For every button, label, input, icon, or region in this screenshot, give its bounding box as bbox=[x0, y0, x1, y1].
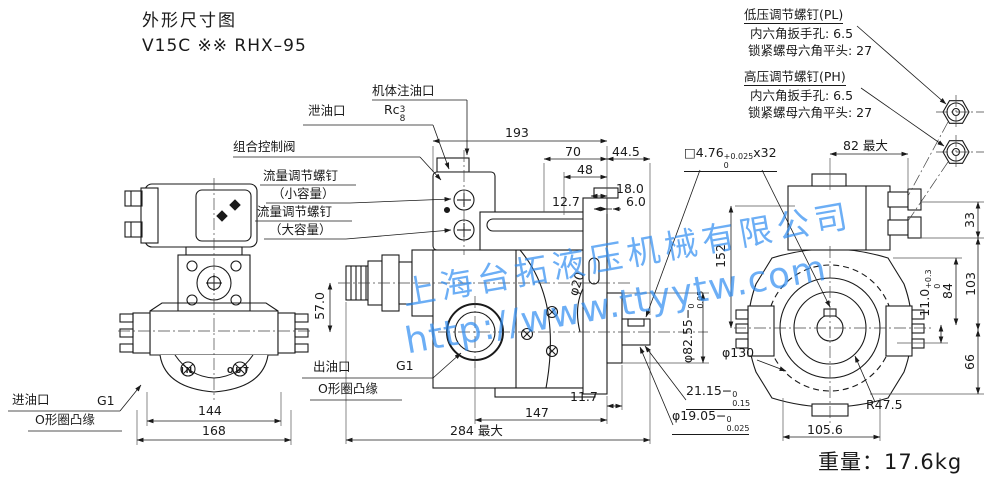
pl-callout-title: 低压调节螺钉(PL) bbox=[744, 8, 843, 24]
dim-84: 84 bbox=[941, 283, 955, 299]
flow-screw-small-label: 流量调节螺钉 bbox=[263, 169, 338, 183]
dim-105-6: 105.6 bbox=[807, 423, 843, 437]
dim-193: 193 bbox=[505, 126, 529, 140]
dim-r47-5: R47.5 bbox=[866, 398, 903, 412]
dim-6-0: 6.0 bbox=[626, 195, 646, 209]
dim-147: 147 bbox=[525, 406, 549, 420]
in-port-mark: IN bbox=[181, 366, 194, 375]
ph-callout-hex: 内六角扳手孔: 6.5 bbox=[750, 89, 853, 103]
drain-thread-label: Rc38 bbox=[384, 103, 405, 124]
outlet-port-label: 出油口 bbox=[313, 360, 351, 374]
rear-valve-block bbox=[788, 186, 890, 250]
flow-screw-small-sub: （小容量） bbox=[272, 187, 335, 201]
dim-70: 70 bbox=[565, 145, 581, 159]
control-valve-label: 组合控制阀 bbox=[233, 140, 296, 154]
weight-label: 重量： bbox=[818, 450, 884, 474]
dimension-drawing-page: { "title": { "heading": "外形尺寸图", "model"… bbox=[0, 0, 1000, 482]
flow-screw-large-label: 流量调节螺钉 bbox=[257, 205, 332, 219]
dim-dia-19-05: φ19.05−00.025 bbox=[672, 409, 749, 435]
drawing-title-block: 外形尺寸图 V15C ※※ RHX–95 bbox=[142, 6, 307, 56]
outlet-size-label: G1 bbox=[396, 359, 414, 373]
pl-callout-nut: 锁紧螺母六角平头: 27 bbox=[748, 44, 872, 58]
dim-44-5: 44.5 bbox=[612, 145, 640, 159]
ph-screw bbox=[908, 217, 921, 238]
dim-33: 33 bbox=[963, 212, 977, 228]
dim-103: 103 bbox=[964, 272, 978, 296]
rear-flange-plate bbox=[583, 198, 607, 394]
pl-screw bbox=[908, 189, 921, 210]
inlet-flange-label: O形圈凸缘 bbox=[35, 413, 95, 427]
dim-144: 144 bbox=[198, 404, 222, 418]
model-number: V15C ※※ RHX–95 bbox=[142, 36, 307, 56]
pump-drawing bbox=[0, 0, 1000, 482]
flow-screw-large-sub: （大容量） bbox=[269, 223, 332, 237]
inlet-size-label: G1 bbox=[97, 394, 115, 408]
dim-168: 168 bbox=[202, 424, 226, 438]
drain-port-label: 泄油口 bbox=[308, 104, 346, 118]
dim-11-0: 11.0+0.30 bbox=[918, 269, 942, 316]
dim-82-max: 82 最大 bbox=[843, 139, 888, 153]
fill-port-label: 机体注油口 bbox=[372, 84, 435, 98]
ph-callout-title: 高压调节螺钉(PH) bbox=[744, 70, 846, 86]
side-view bbox=[346, 158, 650, 397]
dim-21-15: 21.15−00.15 bbox=[686, 384, 750, 410]
outlet-flange-label: O形圈凸缘 bbox=[318, 382, 378, 396]
dim-57-0: 57.0 bbox=[313, 292, 327, 320]
weight-note: 重量：17.6kg bbox=[818, 446, 962, 476]
inlet-port-label: 进油口 bbox=[12, 393, 50, 407]
dim-12-7: 12.7 bbox=[552, 195, 580, 209]
dim-152: 152 bbox=[714, 244, 728, 268]
dim-key-4-76: □4.76+0.0250x32 bbox=[684, 146, 777, 172]
pl-callout-hex: 内六角扳手孔: 6.5 bbox=[750, 27, 853, 41]
dim-11-7: 11.7 bbox=[570, 390, 598, 404]
out-port-mark: OUT bbox=[227, 366, 251, 375]
dim-48: 48 bbox=[577, 163, 593, 177]
dim-dia-130: φ130 bbox=[722, 346, 754, 360]
drawing-title: 外形尺寸图 bbox=[142, 6, 307, 31]
pilot-spigot bbox=[607, 293, 622, 363]
dim-66: 66 bbox=[963, 354, 977, 370]
weight-value: 17.6kg bbox=[884, 450, 962, 474]
dim-dia-82-55: φ82.55−00.05 bbox=[681, 291, 705, 363]
ph-callout-nut: 锁紧螺母六角平头: 27 bbox=[748, 106, 872, 120]
dim-284-max: 284 最大 bbox=[450, 424, 503, 438]
